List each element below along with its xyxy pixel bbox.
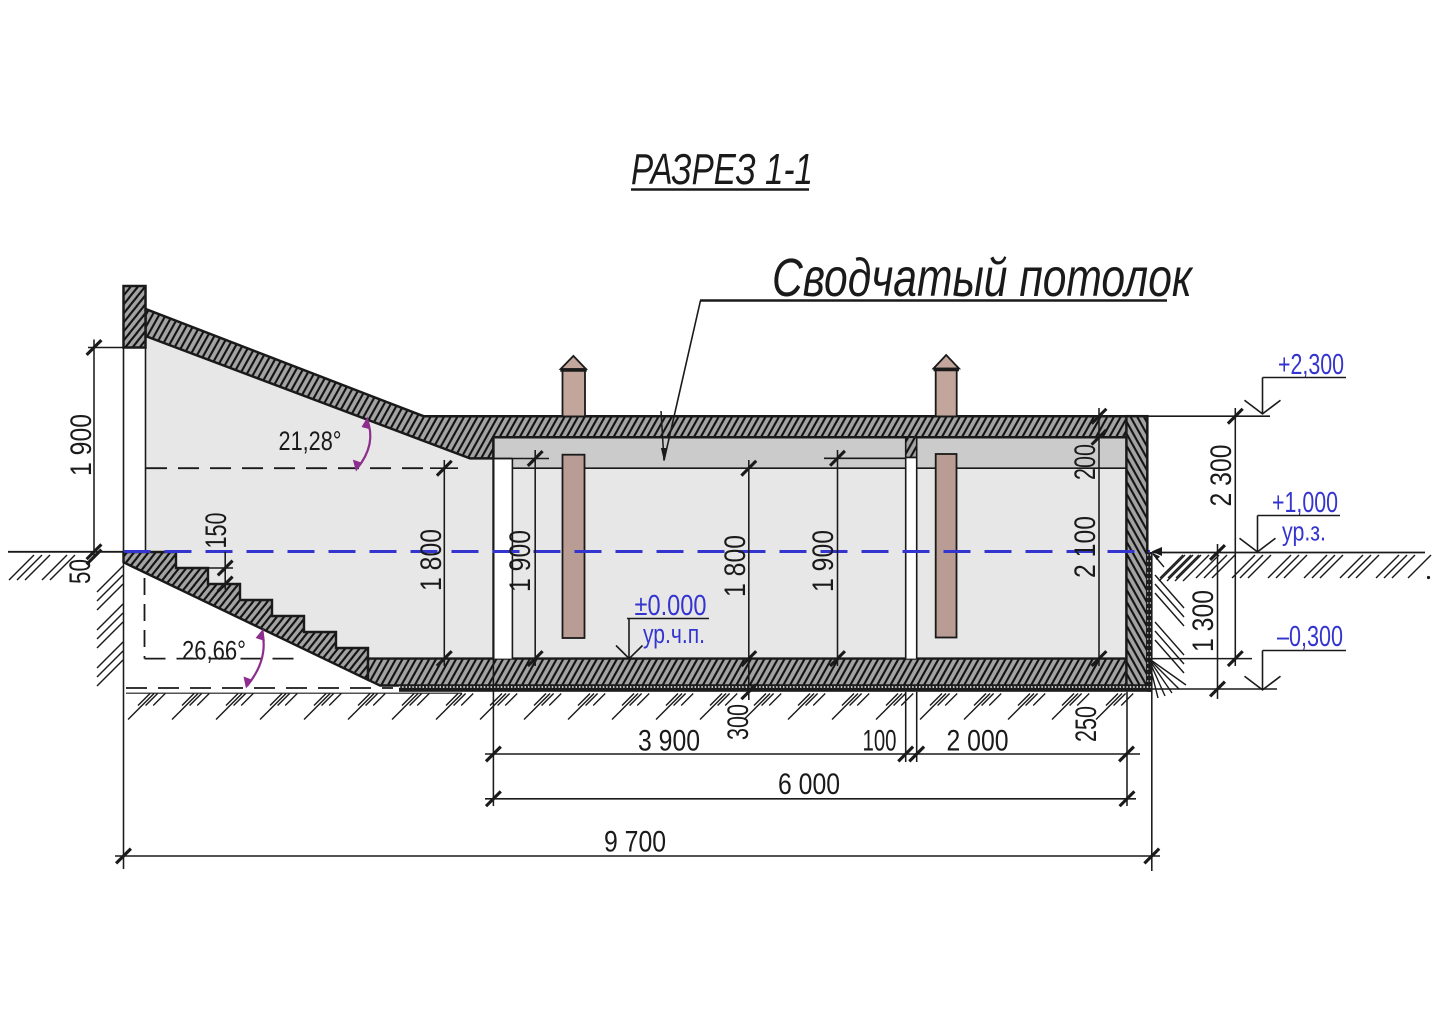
- svg-text:1 300: 1 300: [1187, 590, 1220, 652]
- svg-text:150: 150: [200, 513, 233, 549]
- svg-text:9 700: 9 700: [604, 826, 666, 859]
- svg-text:21,28°: 21,28°: [279, 426, 342, 456]
- svg-text:Сводчатый потолок: Сводчатый потолок: [772, 248, 1194, 308]
- svg-text:1 900: 1 900: [504, 530, 537, 592]
- svg-text:ур.ч.п.: ур.ч.п.: [643, 619, 705, 649]
- svg-text:+2,300: +2,300: [1278, 349, 1344, 381]
- svg-text:2 100: 2 100: [1069, 516, 1102, 578]
- svg-text:200: 200: [1069, 444, 1102, 480]
- svg-text:1 900: 1 900: [65, 414, 98, 476]
- svg-text:250: 250: [1070, 706, 1103, 742]
- svg-text:50: 50: [64, 559, 97, 584]
- svg-text:2 000: 2 000: [947, 725, 1009, 758]
- svg-text:300: 300: [722, 704, 755, 740]
- svg-text:1 800: 1 800: [415, 529, 448, 591]
- svg-text:2 300: 2 300: [1205, 445, 1238, 507]
- svg-text:ур.з.: ур.з.: [1282, 517, 1326, 547]
- svg-text:3 900: 3 900: [638, 725, 700, 758]
- svg-text:1 900: 1 900: [807, 530, 840, 592]
- svg-text:100: 100: [863, 725, 897, 758]
- svg-text:+1,000: +1,000: [1272, 487, 1338, 519]
- svg-text:6 000: 6 000: [778, 768, 840, 801]
- svg-text:РАЗРЕЗ 1-1: РАЗРЕЗ 1-1: [631, 145, 813, 194]
- svg-text:1 800: 1 800: [719, 535, 752, 597]
- svg-text:–0,300: –0,300: [1277, 621, 1343, 653]
- svg-text:±0.000: ±0.000: [635, 590, 707, 622]
- svg-text:26,66°: 26,66°: [182, 636, 246, 666]
